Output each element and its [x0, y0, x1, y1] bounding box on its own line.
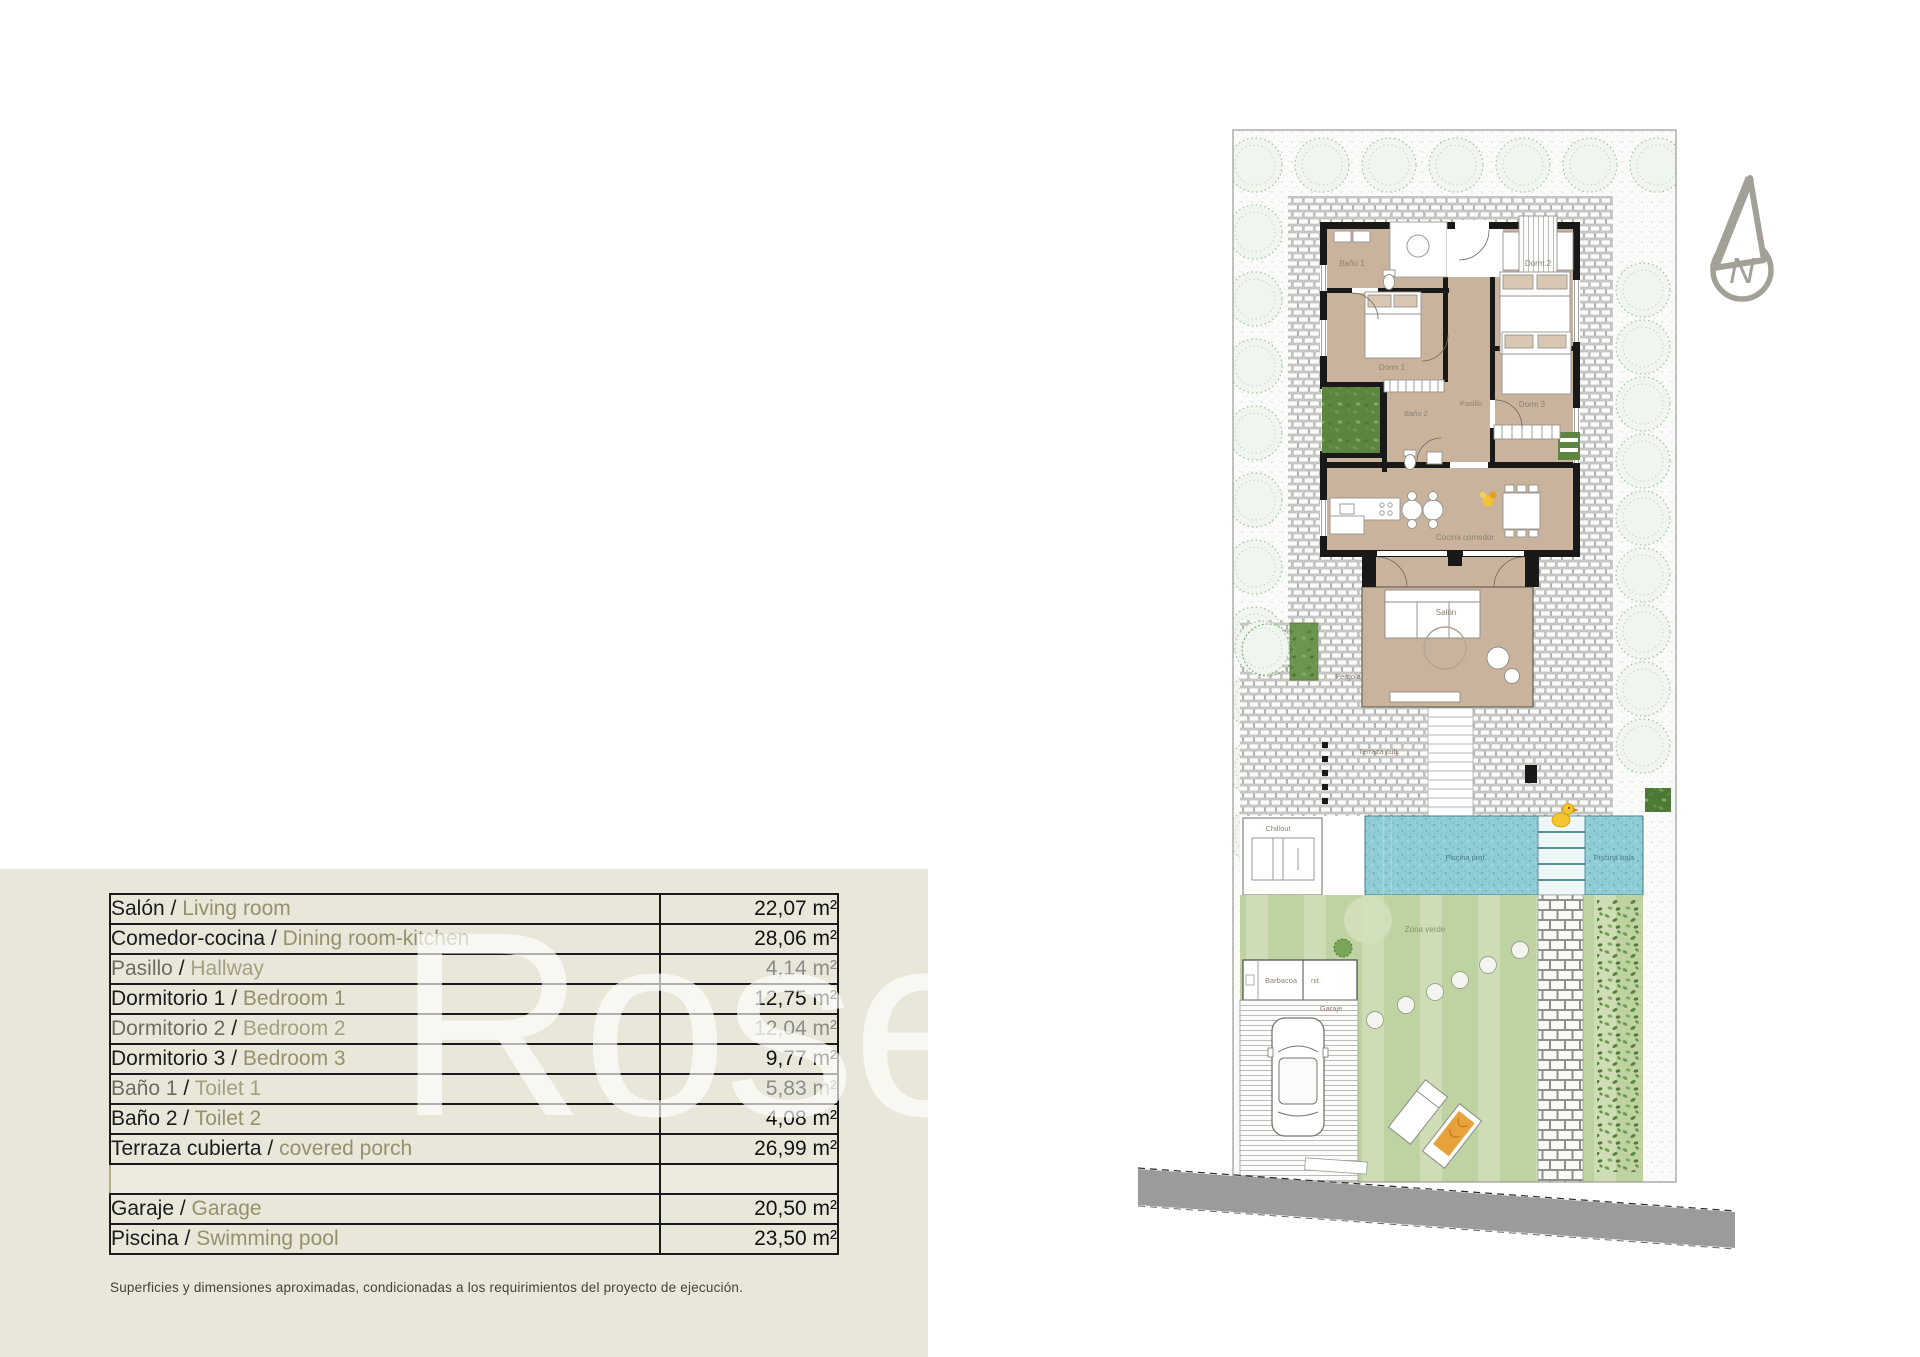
garden-path [1538, 895, 1583, 1201]
barbecue-area [1243, 960, 1357, 1000]
area-value: 22,07 m² [660, 894, 838, 924]
area-value: 28,06 m² [660, 924, 838, 954]
room-label-dorm3: Dorm 3 [1519, 400, 1546, 409]
area-value: 4,14 m² [660, 954, 838, 984]
areas-table: Salón / Living room22,07 m²Comedor-cocin… [109, 893, 839, 1255]
table-row: Pasillo / Hallway4,14 m² [110, 954, 838, 984]
room-name-en: Bedroom 2 [243, 1017, 346, 1040]
room-label-salon: Salón [1436, 608, 1456, 617]
room-name-en: covered porch [279, 1137, 412, 1160]
room-name-es: Terraza cubierta [111, 1137, 262, 1160]
label-piscina-baja: Piscina baja [1594, 853, 1635, 862]
table-row: Garaje / Garage20,50 m² [110, 1194, 838, 1224]
footnote: Superficies y dimensiones aproximadas, c… [110, 1280, 743, 1295]
area-value: 12,75 m² [660, 984, 838, 1014]
table-row: Comedor-cocina / Dining room-kitchen28,0… [110, 924, 838, 954]
table-row: Salón / Living room22,07 m² [110, 894, 838, 924]
entry-hall [1447, 229, 1503, 277]
table-row: Piscina / Swimming pool23,50 m² [110, 1224, 838, 1254]
label-piscina-prof: Piscina prof. [1445, 853, 1486, 862]
room-label-cocina: Cocina comedor [1436, 533, 1495, 542]
room-name-en: Swimming pool [196, 1227, 338, 1250]
shower-room [1390, 222, 1447, 277]
room-name-es: Piscina [111, 1227, 179, 1250]
walkway [1428, 708, 1473, 816]
hedge-column [1597, 900, 1641, 1172]
room-name-es: Dormitorio 3 [111, 1047, 225, 1070]
room-label-banyo2: Baño 2 [1404, 409, 1428, 418]
room-name-en: Toilet 1 [195, 1077, 262, 1100]
room-label-dorm2: Dorm.2 [1525, 259, 1552, 268]
label-terraza: Terraza cub. [1358, 747, 1399, 756]
area-value: 23,50 m² [660, 1224, 838, 1254]
north-letter: N [1729, 250, 1756, 291]
label-barbacoa: Barbacoa [1265, 976, 1298, 985]
room-name-es: Dormitorio 2 [111, 1017, 225, 1040]
room-name-es: Garaje [111, 1197, 174, 1220]
label-chillout: Chillout [1265, 824, 1291, 833]
area-value: 5,83 m² [660, 1074, 838, 1104]
table-row [110, 1164, 838, 1194]
room-name-es: Baño 2 [111, 1107, 178, 1130]
room-label-dorm1: Dorm 1 [1379, 363, 1406, 372]
car [1268, 1018, 1328, 1136]
room-name-es: Salón [111, 897, 165, 920]
area-value: 26,99 m² [660, 1134, 838, 1164]
area-value: 4,08 m² [660, 1104, 838, 1134]
label-garaje: Garaje [1320, 1004, 1343, 1013]
floor-plan: Baño 1 Dorm.2 Dorm 1 Baño 2 Pasillo Dorm… [1100, 120, 1800, 1300]
table-row: Dormitorio 2 / Bedroom 212,04 m² [110, 1014, 838, 1044]
room-name-en: Living room [182, 897, 291, 920]
room-name-es: Baño 1 [111, 1077, 178, 1100]
room-name-en: Dining room-kitchen [283, 927, 470, 950]
table-row: Baño 2 / Toilet 24,08 m² [110, 1104, 838, 1134]
courtyard-garden [1322, 387, 1380, 453]
east-garden [1558, 432, 1580, 460]
room-name-es: Dormitorio 1 [111, 987, 225, 1010]
table-row: Dormitorio 3 / Bedroom 39,77 m² [110, 1044, 838, 1074]
plot: Baño 1 Dorm.2 Dorm 1 Baño 2 Pasillo Dorm… [1228, 130, 1684, 1205]
area-value: 20,50 m² [660, 1194, 838, 1224]
area-value: 9,77 m² [660, 1044, 838, 1074]
room-label-banyo1: Baño 1 [1339, 259, 1365, 268]
room-name-es: Pasillo [111, 957, 173, 980]
label-zona-verde: Zona verde [1405, 925, 1446, 934]
room-label-pasillo: Pasillo [1460, 399, 1482, 408]
room-name-es: Comedor-cocina [111, 927, 265, 950]
room-name-en: Bedroom 1 [243, 987, 346, 1010]
room-name-en: Garage [192, 1197, 262, 1220]
table-row: Terraza cubierta / covered porch26,99 m² [110, 1134, 838, 1164]
label-barbacoa-unit: nit. [1311, 976, 1321, 985]
garage [1240, 1000, 1358, 1185]
label-pergola: Pérgola [1335, 672, 1362, 681]
room-name-en: Hallway [190, 957, 264, 980]
pergola [1235, 621, 1318, 680]
room-name-en: Bedroom 3 [243, 1047, 346, 1070]
room-name-en: Toilet 2 [195, 1107, 262, 1130]
table-row: Baño 1 / Toilet 15,83 m² [110, 1074, 838, 1104]
area-value: 12,04 m² [660, 1014, 838, 1044]
pool-steps [1538, 816, 1585, 895]
table-row: Dormitorio 1 / Bedroom 112,75 m² [110, 984, 838, 1014]
